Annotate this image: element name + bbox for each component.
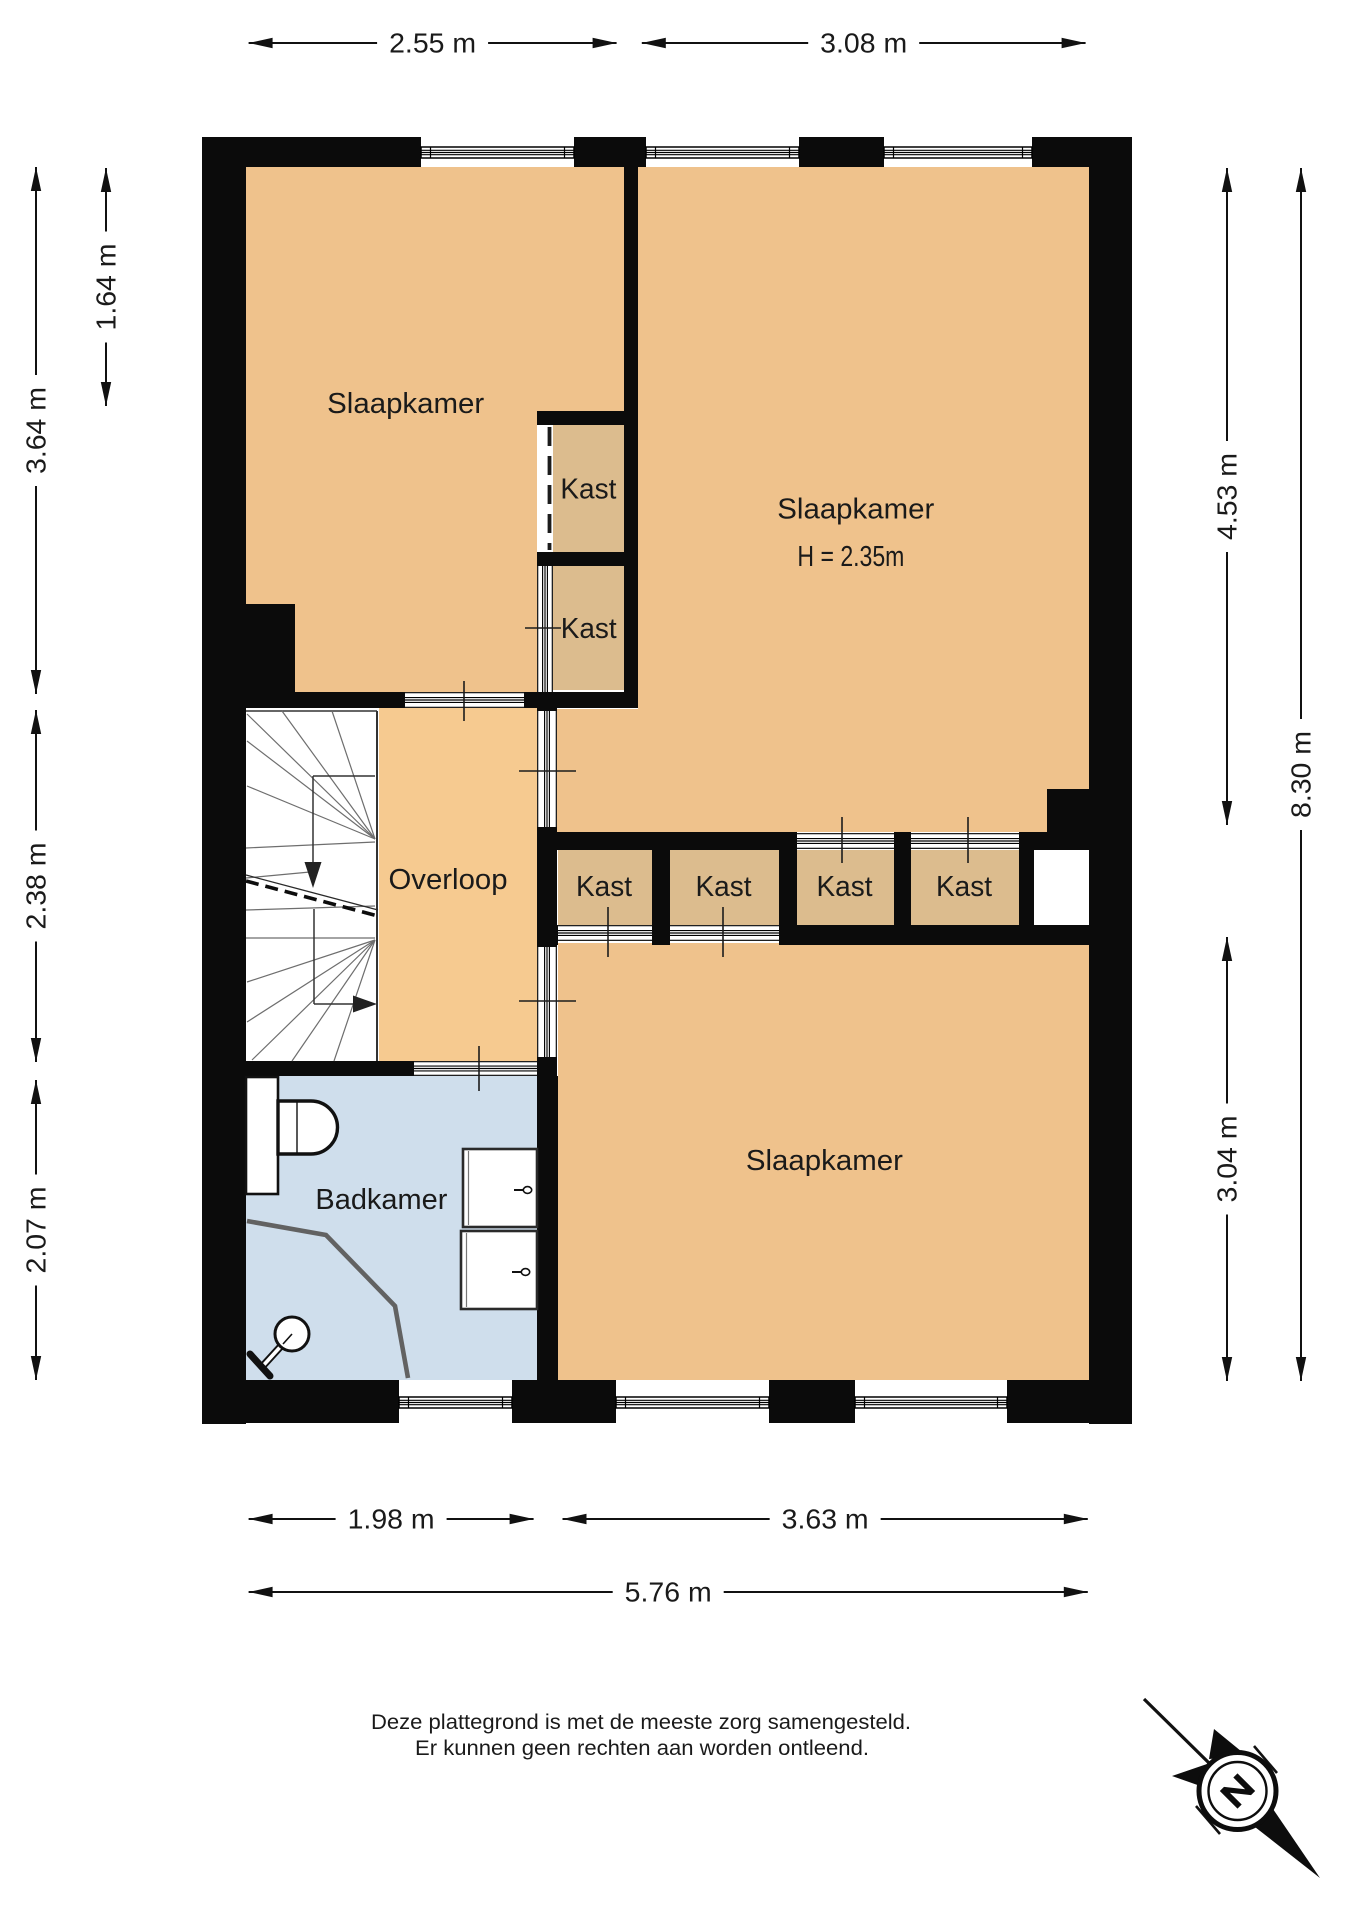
svg-text:Kast: Kast [936, 871, 992, 903]
svg-text:2.38 m: 2.38 m [21, 843, 52, 930]
svg-text:H = 2.35m: H = 2.35m [797, 541, 904, 573]
svg-text:3.64 m: 3.64 m [21, 387, 52, 474]
svg-text:Kast: Kast [696, 871, 752, 903]
svg-text:Kast: Kast [817, 871, 873, 903]
svg-text:Deze plattegrond is met de mee: Deze plattegrond is met de meeste zorg s… [371, 1710, 911, 1734]
svg-text:4.53 m: 4.53 m [1212, 453, 1243, 540]
svg-text:Kast: Kast [560, 474, 616, 506]
svg-text:Kast: Kast [561, 613, 617, 645]
svg-text:5.76 m: 5.76 m [625, 1577, 712, 1608]
svg-text:2.55 m: 2.55 m [389, 28, 476, 59]
svg-text:Overloop: Overloop [389, 864, 508, 896]
svg-text:3.08 m: 3.08 m [820, 28, 907, 59]
svg-text:Slaapkamer: Slaapkamer [327, 388, 484, 420]
svg-text:3.63 m: 3.63 m [782, 1504, 869, 1535]
svg-text:Slaapkamer: Slaapkamer [746, 1145, 903, 1177]
svg-text:Er kunnen geen rechten aan wor: Er kunnen geen rechten aan worden ontlee… [415, 1736, 869, 1760]
svg-text:1.64 m: 1.64 m [91, 244, 122, 331]
svg-text:8.30 m: 8.30 m [1286, 731, 1317, 818]
svg-text:3.04 m: 3.04 m [1212, 1116, 1243, 1203]
svg-text:Slaapkamer: Slaapkamer [777, 493, 934, 525]
svg-text:1.98 m: 1.98 m [348, 1504, 435, 1535]
svg-text:Badkamer: Badkamer [315, 1184, 447, 1216]
svg-text:Kast: Kast [576, 871, 632, 903]
svg-text:2.07 m: 2.07 m [21, 1187, 52, 1274]
